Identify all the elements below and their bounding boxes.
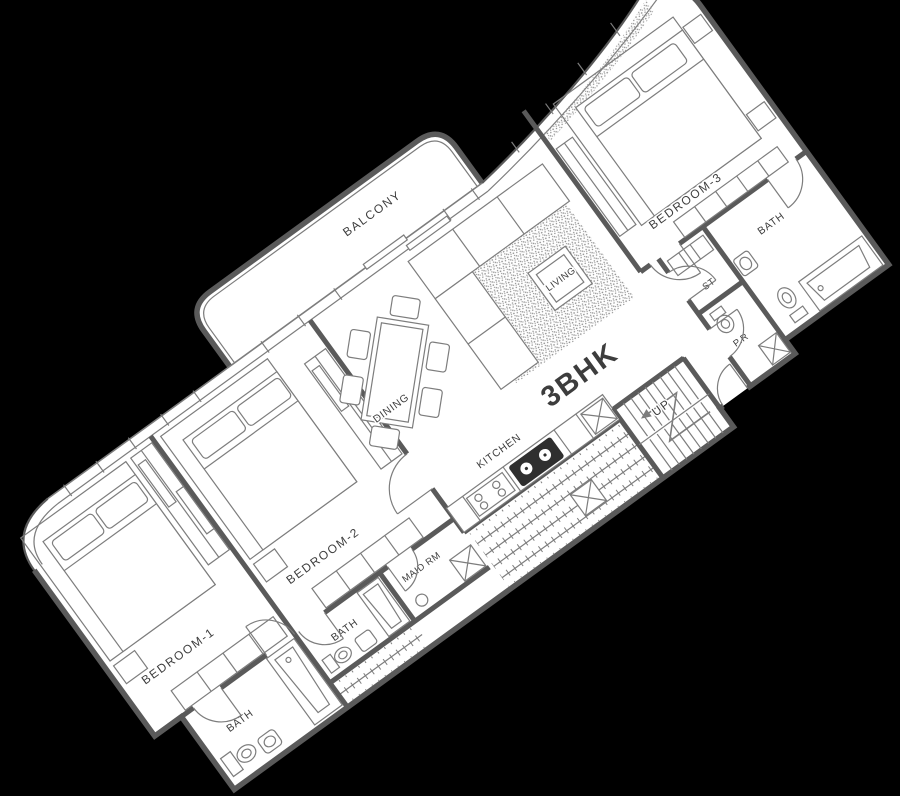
floor-plan-svg: BALCONY [0, 0, 900, 796]
chair-icon [419, 387, 443, 418]
chair-icon [347, 329, 371, 360]
chair-icon [426, 342, 450, 373]
floor-plan-page: BALCONY [0, 0, 900, 796]
chair-icon [390, 295, 421, 319]
chair-icon [340, 375, 364, 406]
chair-icon [369, 426, 400, 450]
